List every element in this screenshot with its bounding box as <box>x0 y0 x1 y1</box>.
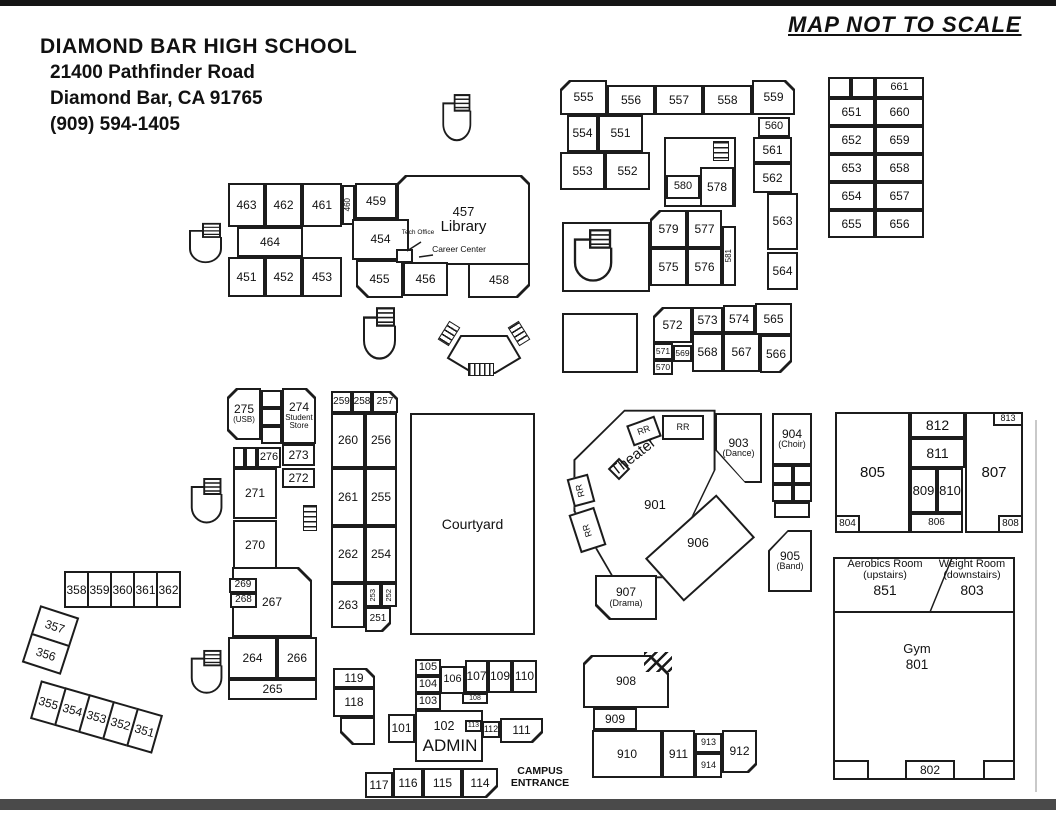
room-360: 360 <box>110 571 135 608</box>
room-263: 263 <box>331 583 365 628</box>
room-108: 108 <box>462 693 488 704</box>
room-subtitle: (Drama) <box>610 599 643 609</box>
room-904: 904(Choir) <box>772 413 812 465</box>
room-808: 808 <box>998 515 1023 533</box>
unlabeled-structure <box>562 313 638 373</box>
room-number: 802 <box>920 764 940 777</box>
room-number: 458 <box>489 274 509 287</box>
room-number: 268 <box>235 595 252 606</box>
room-number: 660 <box>889 106 909 119</box>
room-number: 568 <box>697 346 717 359</box>
room-266: 266 <box>277 637 317 679</box>
room-subtitle: (Choir) <box>778 440 806 450</box>
room-number: 110 <box>515 670 534 683</box>
room-573: 573 <box>692 307 723 333</box>
room-565: 565 <box>755 303 792 335</box>
room-number: 655 <box>841 218 861 231</box>
unlabeled-structure <box>774 502 810 518</box>
map-scale-note: MAP NOT TO SCALE <box>788 12 1022 38</box>
room-462: 462 <box>265 183 302 227</box>
room-number: 272 <box>288 472 308 485</box>
room-number: 276 <box>260 452 278 464</box>
room-361: 361 <box>133 571 158 608</box>
room-568: 568 <box>692 333 723 372</box>
room-number: 358 <box>66 583 86 597</box>
room-number: 804 <box>839 519 856 530</box>
room-264: 264 <box>228 637 277 679</box>
room-657: 657 <box>875 182 924 210</box>
room-number: 570 <box>656 363 670 372</box>
room-number: 275 <box>234 403 254 416</box>
room-270: 270 <box>233 520 277 570</box>
room-number: 111 <box>512 724 530 737</box>
room-number: 113 <box>468 722 479 729</box>
row-358-362: 358359360361362 <box>64 571 181 608</box>
room-number: RR <box>581 522 594 537</box>
room-number: 256 <box>371 434 391 447</box>
room-463: 463 <box>228 183 265 227</box>
room-558: 558 <box>703 85 752 115</box>
room-275: 275(USB) <box>227 388 261 440</box>
room-number: 459 <box>366 195 386 208</box>
room-561: 561 <box>753 137 792 163</box>
bench-icon <box>303 505 317 531</box>
unlabeled-structure <box>772 484 793 502</box>
room-number: 251 <box>370 614 387 625</box>
room-656: 656 <box>875 210 924 238</box>
room-number: 907 <box>616 586 636 599</box>
room-581: 581 <box>722 226 736 286</box>
room-number: 914 <box>701 761 716 770</box>
room-number: 454 <box>370 233 390 246</box>
room-362: 362 <box>156 571 181 608</box>
school-address-city: Diamond Bar, CA 91765 <box>50 88 357 111</box>
room-658: 658 <box>875 154 924 182</box>
room-555: 555 <box>560 80 607 115</box>
school-address-street: 21400 Pathfinder Road <box>50 62 357 85</box>
stage-steps <box>468 363 494 376</box>
room-number: 656 <box>889 218 909 231</box>
room-number: 810 <box>939 484 961 498</box>
room-number: 260 <box>338 434 358 447</box>
room-number: 453 <box>312 271 332 284</box>
room-number: 262 <box>338 548 358 561</box>
room-660: 660 <box>875 98 924 126</box>
school-phone: (909) 594-1405 <box>50 114 357 137</box>
room-number: 559 <box>763 91 783 104</box>
unlabeled-structure <box>833 760 869 780</box>
room-452: 452 <box>265 257 302 297</box>
room-number: 560 <box>765 121 783 133</box>
room-564: 564 <box>767 252 798 290</box>
room-115: 115 <box>423 768 462 798</box>
room-number: 557 <box>669 94 689 107</box>
room-number: 264 <box>242 652 262 665</box>
room-number: 809 <box>913 484 935 498</box>
room-number: 563 <box>772 215 792 228</box>
room-252: 252 <box>381 583 397 607</box>
room-number: 575 <box>658 261 678 274</box>
theater-number: 901 <box>638 498 672 513</box>
room-104: 104 <box>415 676 441 693</box>
room-112: 112 <box>482 721 500 738</box>
room-554: 554 <box>567 115 598 152</box>
room-number: 109 <box>490 670 510 683</box>
room-271: 271 <box>233 468 277 519</box>
room-102-label: 102 <box>428 719 460 733</box>
room-fill <box>342 719 373 743</box>
room-number: 357 <box>43 616 66 636</box>
room-number: 651 <box>841 106 861 119</box>
room-106: 106 <box>440 666 465 694</box>
gym-number: 801 <box>886 657 948 672</box>
room-459: 459 <box>355 183 397 219</box>
room-802: 802 <box>905 760 955 780</box>
admin-label: ADMIN <box>416 736 484 755</box>
room-574: 574 <box>723 305 755 333</box>
room-563: 563 <box>767 193 798 250</box>
room-number: 808 <box>1002 519 1019 530</box>
unlabeled-structure <box>261 426 282 444</box>
room-number: 258 <box>354 397 371 408</box>
room-number: 807 <box>981 465 1006 481</box>
room-274: 274Student Store <box>282 388 316 444</box>
room-654: 654 <box>828 182 875 210</box>
room-number: 571 <box>656 347 670 356</box>
room-111: 111 <box>500 718 543 743</box>
career-center-label: Career Center <box>424 245 494 255</box>
room-number: 813 <box>1000 414 1015 423</box>
room-number: 659 <box>889 134 909 147</box>
room-552: 552 <box>605 152 650 190</box>
unlabeled-structure <box>851 77 875 98</box>
room-number: 464 <box>260 236 280 249</box>
room-911: 911 <box>662 730 695 778</box>
room-number: RR <box>575 483 587 498</box>
room-273: 273 <box>282 444 315 466</box>
room-258: 258 <box>352 391 372 413</box>
page-edge-bottom <box>0 799 1056 810</box>
unlabeled-structure <box>793 465 812 484</box>
room-262: 262 <box>331 526 365 583</box>
room-number: 274 <box>289 401 309 414</box>
room-number: 653 <box>841 162 861 175</box>
room-806: 806 <box>910 513 963 533</box>
room-number: 104 <box>419 679 437 691</box>
stairs-icon <box>568 228 624 288</box>
room-number: 360 <box>112 583 132 597</box>
room-number: 908 <box>616 675 636 688</box>
aerobics-room-floor: (upstairs) <box>836 570 934 582</box>
room-number: 566 <box>766 348 786 361</box>
room-number: 259 <box>333 397 350 408</box>
room-101: 101 <box>388 714 415 743</box>
room-117: 117 <box>365 772 393 798</box>
room-358: 358 <box>64 571 89 608</box>
room-number: 362 <box>158 583 178 597</box>
room-number: 580 <box>674 181 692 193</box>
room-number: 255 <box>371 491 391 504</box>
room-subtitle: (Band) <box>776 562 803 572</box>
room-655: 655 <box>828 210 875 238</box>
room-subtitle: (Dance) <box>722 449 754 459</box>
stairs-icon <box>438 93 480 147</box>
room-number: 361 <box>135 583 155 597</box>
room-255: 255 <box>365 468 397 526</box>
room-265: 265 <box>228 679 317 700</box>
stairs-icon <box>186 649 232 699</box>
room-560: 560 <box>758 117 790 137</box>
room-number: 912 <box>729 745 749 758</box>
stairs-icon <box>186 477 232 529</box>
room-116: 116 <box>393 768 423 798</box>
room-number: 463 <box>236 199 256 212</box>
room-number: 556 <box>621 94 641 107</box>
room-number: 555 <box>573 91 593 104</box>
room-804: 804 <box>835 515 860 533</box>
room-107: 107 <box>465 660 488 693</box>
room-907: 907(Drama) <box>595 575 657 620</box>
room-464: 464 <box>237 227 303 257</box>
room-276: 276 <box>257 447 281 468</box>
room-number: 576 <box>694 261 714 274</box>
unlabeled-structure <box>983 760 1015 780</box>
room-number: 356 <box>34 644 57 664</box>
room-551: 551 <box>598 115 643 152</box>
room-118: 118 <box>333 688 375 717</box>
room-number: 581 <box>725 249 733 262</box>
room-260: 260 <box>331 413 365 468</box>
room-number: 573 <box>697 314 717 327</box>
room-257: 257 <box>372 391 398 413</box>
room-570: 570 <box>653 360 673 375</box>
room-569: 569 <box>673 345 692 362</box>
room-number: 654 <box>841 190 861 203</box>
room-579: 579 <box>650 210 687 248</box>
room-453: 453 <box>302 257 342 297</box>
room-number: 115 <box>433 777 452 790</box>
room-subtitle: (USB) <box>233 416 255 425</box>
room-number: 455 <box>369 273 389 286</box>
room-number: 119 <box>344 672 363 685</box>
room-number: 252 <box>385 589 393 602</box>
unlabeled-structure <box>261 390 282 408</box>
weight-room-floor: (downstairs) <box>930 570 1014 582</box>
room-575: 575 <box>650 248 687 286</box>
room-number: 273 <box>288 449 308 462</box>
room-103: 103 <box>415 693 441 710</box>
room-number: 552 <box>617 165 637 178</box>
room-number: 456 <box>415 273 435 286</box>
room-659: 659 <box>875 126 924 154</box>
room-number: 812 <box>926 418 949 433</box>
room-572: 572 <box>653 307 692 343</box>
room-556: 556 <box>607 85 655 115</box>
room-number: 269 <box>235 580 252 591</box>
room-subtitle: Library <box>441 219 487 236</box>
room-913: 913 <box>695 733 722 753</box>
room-810: 810 <box>937 468 963 513</box>
room-number: 353 <box>85 708 108 727</box>
room-number: 451 <box>236 271 256 284</box>
room-number: 652 <box>841 134 861 147</box>
room-subtitle: Student Store <box>282 414 316 432</box>
room-number: 118 <box>344 696 363 709</box>
room-number: 572 <box>662 319 682 332</box>
unlabeled-structure <box>340 717 375 745</box>
room-number: 270 <box>245 539 265 552</box>
room-number: 359 <box>89 583 109 597</box>
room-562: 562 <box>753 163 792 193</box>
room-557: 557 <box>655 85 703 115</box>
room-number: 658 <box>889 162 909 175</box>
room-272: 272 <box>282 468 315 488</box>
room-number: 105 <box>419 662 437 674</box>
room-567: 567 <box>723 333 760 372</box>
room-number: 567 <box>731 346 751 359</box>
room-number: 565 <box>763 313 783 326</box>
room-580: 580 <box>666 175 700 199</box>
room-number: RR <box>677 423 690 432</box>
room-251: 251 <box>365 607 391 632</box>
room-105: 105 <box>415 659 441 676</box>
room-253: 253 <box>365 583 381 607</box>
weight-room-number: 803 <box>930 583 1014 599</box>
room-number: 805 <box>860 465 885 481</box>
room-651: 651 <box>828 98 875 126</box>
room-number: 352 <box>109 714 132 733</box>
room-number: 806 <box>928 518 945 529</box>
school-name: DIAMOND BAR HIGH SCHOOL <box>40 34 357 59</box>
room-653: 653 <box>828 154 875 182</box>
row-355-351: 355354353352351 <box>30 680 163 753</box>
room-461: 461 <box>302 183 342 227</box>
room-number: 351 <box>133 721 156 740</box>
room-number: 913 <box>701 738 716 747</box>
room-559: 559 <box>752 80 795 115</box>
room-912: 912 <box>722 730 757 773</box>
room-number: 271 <box>245 487 265 500</box>
room-268: 268 <box>230 593 257 608</box>
room-number: 106 <box>443 674 461 686</box>
room-number: 266 <box>287 652 307 665</box>
room-114: 114 <box>462 768 498 798</box>
room-906-label: 906 <box>678 536 718 551</box>
room-number: 267 <box>262 596 282 609</box>
unlabeled-structure <box>261 408 282 426</box>
room-909: 909 <box>593 708 637 730</box>
room-number: 562 <box>762 172 782 185</box>
room-number: 452 <box>273 271 293 284</box>
unlabeled-structure <box>772 465 793 484</box>
room-812: 812 <box>910 412 965 438</box>
room-577: 577 <box>687 210 722 248</box>
room-553: 553 <box>560 152 605 190</box>
room-number: 263 <box>338 599 358 612</box>
room-652: 652 <box>828 126 875 154</box>
room-number: 462 <box>273 199 293 212</box>
room-576: 576 <box>687 248 722 286</box>
room-number: 561 <box>762 144 782 157</box>
tech-office-label: Tech Office <box>394 229 442 236</box>
room-number: 261 <box>338 491 358 504</box>
room-number: 574 <box>729 313 749 326</box>
page-edge-top <box>0 0 1056 6</box>
room-number: 117 <box>369 779 388 792</box>
room-number: 253 <box>369 589 377 602</box>
room-359: 359 <box>87 571 112 608</box>
room-254: 254 <box>365 526 397 583</box>
room-813: 813 <box>993 412 1023 426</box>
room-566: 566 <box>760 335 792 373</box>
room-number: 103 <box>419 696 437 708</box>
room-number: 116 <box>398 777 417 790</box>
gym-name: Gym <box>886 642 948 657</box>
room-903: 903(Dance) <box>715 413 762 483</box>
room-courtyard: Courtyard <box>410 413 535 635</box>
unlabeled-structure <box>233 447 245 468</box>
room-number: 569 <box>675 349 689 358</box>
steps-icon <box>713 141 729 161</box>
room-number: 257 <box>377 397 394 408</box>
room-number: 265 <box>262 683 282 696</box>
room-811: 811 <box>910 438 965 468</box>
room-914: 914 <box>695 753 722 778</box>
room-109: 109 <box>488 660 512 693</box>
room-number: 811 <box>926 446 948 461</box>
room-578: 578 <box>700 167 734 207</box>
room-571: 571 <box>653 343 673 360</box>
room-110: 110 <box>512 660 537 693</box>
unlabeled-structure <box>793 484 812 502</box>
unlabeled-structure <box>245 447 257 468</box>
room-number: 460 <box>344 198 352 211</box>
room-458: 458 <box>468 263 530 298</box>
stairs-icon <box>358 306 406 366</box>
room-113: 113 <box>465 720 482 732</box>
room-number: 558 <box>717 94 737 107</box>
room-809: 809 <box>910 468 937 513</box>
room-905: 905(Band) <box>768 530 812 592</box>
room-number: 101 <box>391 722 411 735</box>
room-number: 457 <box>453 205 475 219</box>
room-number: 553 <box>572 165 592 178</box>
room-269: 269 <box>229 578 257 593</box>
room-259: 259 <box>331 391 352 413</box>
room-number: 551 <box>610 127 630 140</box>
aerobics-room-number: 851 <box>836 583 934 599</box>
campus-entrance-label: CAMPUS ENTRANCE <box>504 766 576 790</box>
room-number: 578 <box>707 181 727 194</box>
room-number: 112 <box>484 725 498 734</box>
hatch-marks <box>644 652 672 672</box>
stairs-icon <box>184 222 232 268</box>
unlabeled-structure <box>828 77 851 98</box>
room-number: 114 <box>470 777 489 790</box>
room-455: 455 <box>356 260 403 298</box>
room-number: 577 <box>694 223 714 236</box>
room-661: 661 <box>875 77 924 98</box>
room-number: 909 <box>605 713 625 726</box>
room-256: 256 <box>365 413 397 468</box>
room-number: 107 <box>466 670 486 683</box>
scan-line <box>1035 420 1037 792</box>
room-number: 564 <box>772 265 792 278</box>
room-910: 910 <box>592 730 662 778</box>
room-456: 456 <box>403 262 448 296</box>
room-number: 461 <box>312 199 332 212</box>
room-451: 451 <box>228 257 265 297</box>
